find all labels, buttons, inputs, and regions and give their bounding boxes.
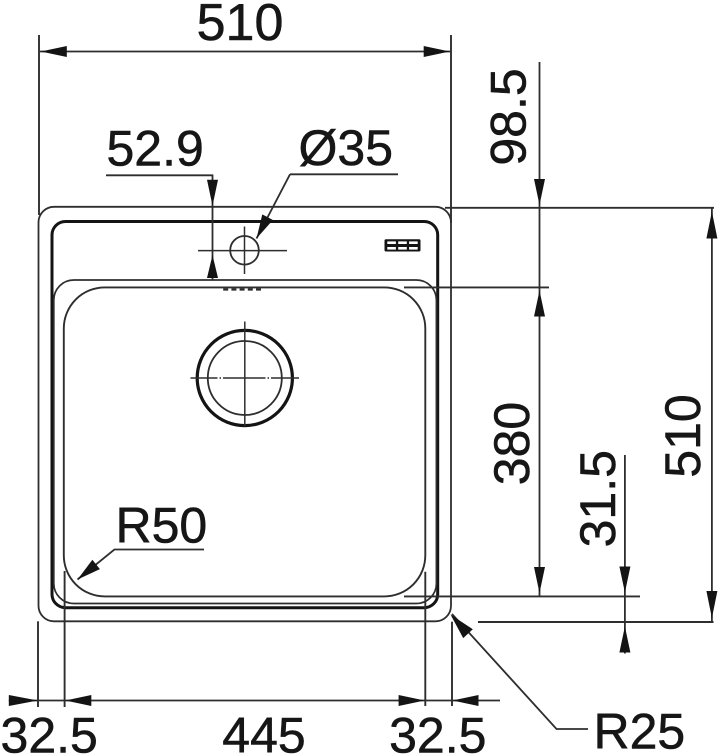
svg-text:R50: R50 bbox=[116, 498, 208, 554]
svg-text:380: 380 bbox=[484, 402, 540, 485]
svg-text:510: 510 bbox=[655, 394, 711, 477]
svg-text:510: 510 bbox=[197, 0, 284, 52]
svg-text:31.5: 31.5 bbox=[570, 450, 626, 547]
svg-text:32.5: 32.5 bbox=[1, 708, 98, 754]
svg-text:98.5: 98.5 bbox=[481, 68, 537, 165]
svg-text:32.5: 32.5 bbox=[389, 708, 486, 754]
svg-text:R25: R25 bbox=[594, 704, 686, 754]
svg-text:445: 445 bbox=[222, 708, 305, 754]
svg-text:Ø35: Ø35 bbox=[299, 120, 394, 176]
svg-text:52.9: 52.9 bbox=[107, 120, 204, 176]
